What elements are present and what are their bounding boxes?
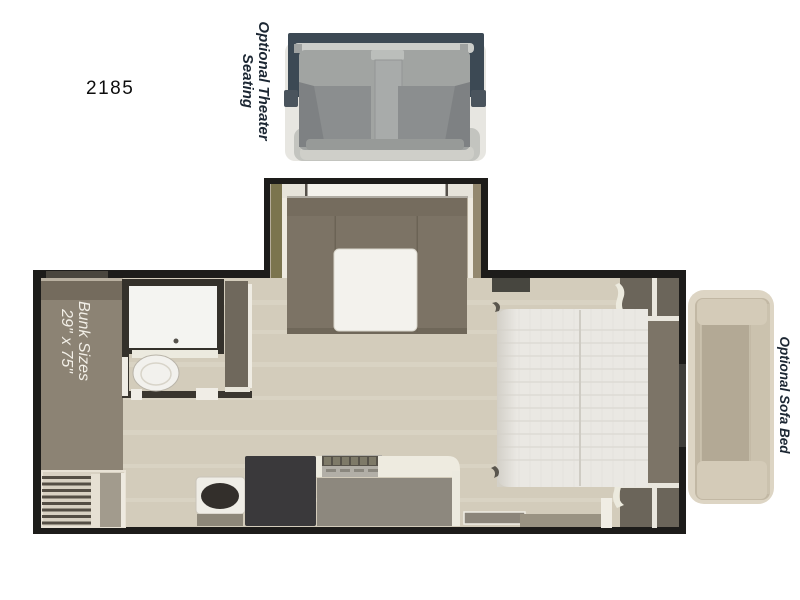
svg-text:Seating: Seating bbox=[239, 54, 256, 108]
svg-text:Bunk Sizes: Bunk Sizes bbox=[75, 301, 92, 381]
svg-text:29" x 75": 29" x 75" bbox=[58, 308, 75, 374]
svg-text:Optional Sofa Bed: Optional Sofa Bed bbox=[777, 336, 792, 454]
svg-text:2185: 2185 bbox=[86, 78, 134, 99]
svg-text:Optional Theater: Optional Theater bbox=[255, 21, 272, 141]
